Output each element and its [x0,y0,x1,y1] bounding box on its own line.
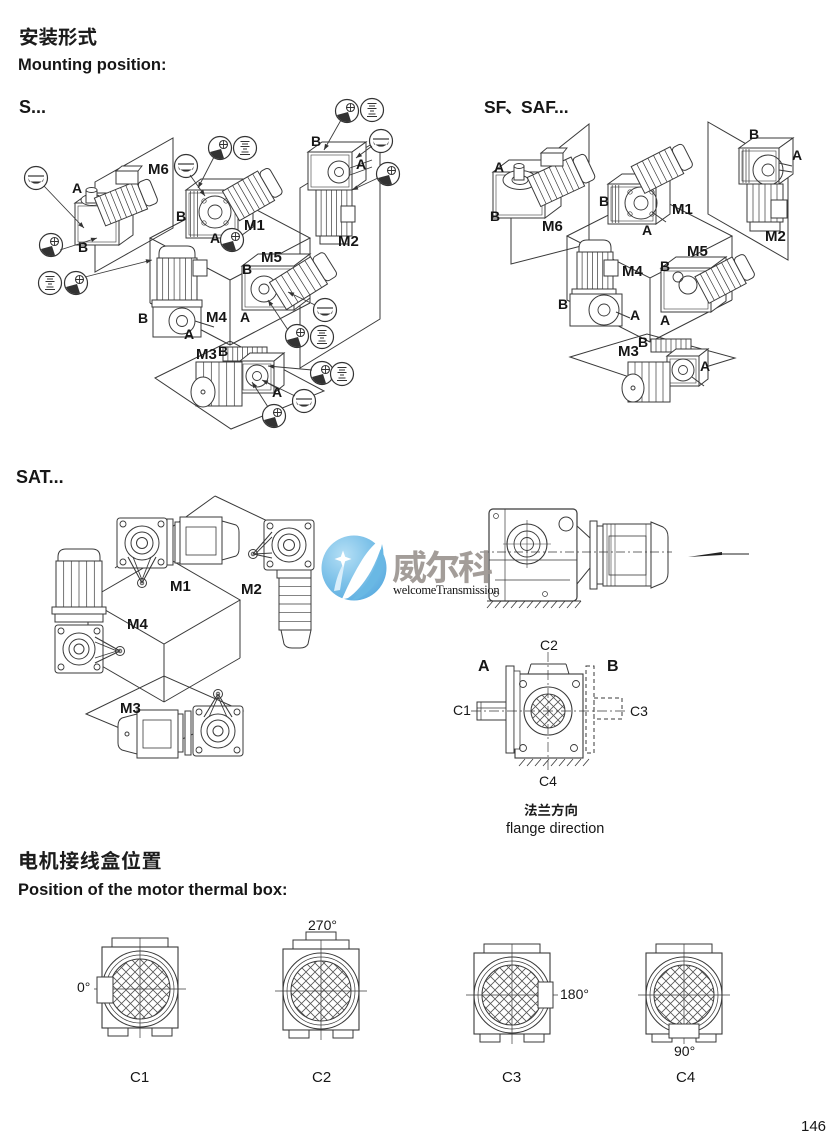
svg-text:B: B [558,296,568,312]
svg-text:A: A [642,222,652,238]
svg-text:C2: C2 [540,637,558,653]
svg-text:C4: C4 [539,773,557,789]
svg-text:B: B [749,126,759,142]
svg-text:B: B [660,258,670,274]
svg-text:B: B [218,343,228,359]
svg-text:M3: M3 [120,700,141,717]
svg-text:180°: 180° [560,986,589,1002]
svg-text:C1: C1 [453,702,471,718]
svg-text:A: A [184,326,194,342]
svg-text:Position of the motor thermal: Position of the motor thermal box: [18,881,288,899]
svg-text:A: A [700,358,710,374]
svg-text:flange direction: flange direction [506,821,604,837]
svg-text:B: B [176,208,186,224]
svg-text:C3: C3 [502,1069,521,1086]
svg-text:B: B [638,334,648,350]
svg-text:M4: M4 [206,309,227,326]
svg-text:M2: M2 [765,228,786,245]
svg-text:146: 146 [801,1118,826,1135]
svg-text:270°: 270° [308,917,337,933]
svg-text:welcomeTransmission: welcomeTransmission [393,583,500,597]
svg-text:M1: M1 [672,201,693,218]
svg-text:M5: M5 [261,249,282,266]
svg-text:A: A [272,384,282,400]
svg-text:C4: C4 [676,1069,695,1086]
svg-text:A: A [660,312,670,328]
svg-text:C2: C2 [312,1069,331,1086]
svg-text:M1: M1 [170,578,191,595]
svg-text:M1: M1 [244,217,265,234]
svg-text:A: A [792,147,802,163]
svg-text:M6: M6 [542,218,563,235]
svg-text:A: A [630,307,640,323]
svg-text:B: B [599,193,609,209]
svg-text:M2: M2 [241,581,262,598]
svg-text:B: B [138,310,148,326]
svg-text:90°: 90° [674,1043,695,1059]
svg-text:B: B [607,658,619,675]
svg-text:0°: 0° [77,979,90,995]
svg-text:A: A [478,658,490,675]
svg-text:C1: C1 [130,1069,149,1086]
svg-text:SAT...: SAT... [16,467,64,487]
svg-text:SF: SF [484,97,507,117]
svg-text:A: A [72,180,82,196]
svg-text:M3: M3 [618,343,639,360]
svg-text:C3: C3 [630,703,648,719]
svg-text:M2: M2 [338,233,359,250]
svg-text:A: A [210,230,220,246]
svg-text:A: A [240,309,250,325]
svg-text:M6: M6 [148,161,169,178]
svg-text:S...: S... [19,97,46,117]
svg-text:B: B [311,133,321,149]
svg-text:M4: M4 [127,616,148,633]
svg-text:A: A [356,156,366,172]
svg-text:A: A [494,159,504,175]
svg-text:SAF...: SAF... [521,97,569,117]
svg-text:B: B [490,208,500,224]
svg-text:M3: M3 [196,346,217,363]
svg-text:B: B [242,261,252,277]
svg-text:Mounting position:: Mounting position: [18,56,166,74]
svg-text:M5: M5 [687,243,708,260]
svg-text:M4: M4 [622,263,643,280]
